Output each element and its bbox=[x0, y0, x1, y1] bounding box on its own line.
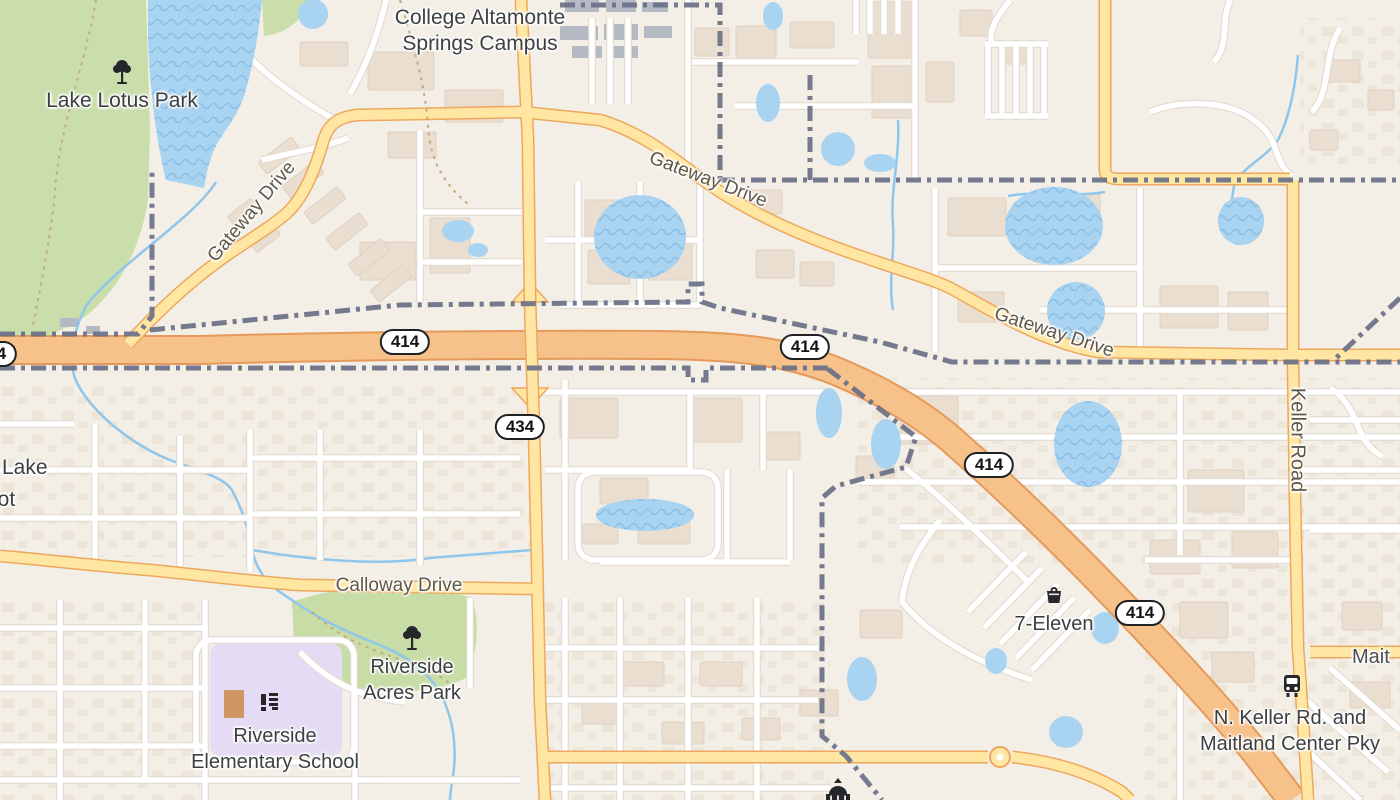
campus-line-3: Springs Campus bbox=[395, 31, 565, 57]
tree-icon bbox=[402, 624, 422, 652]
riverside-acres-line-1: Riverside bbox=[363, 654, 461, 680]
poi-label-lot-partial: Lot bbox=[0, 488, 15, 512]
route-shield-414-d: 414 bbox=[1115, 600, 1165, 626]
map-canvas[interactable] bbox=[0, 0, 1400, 800]
poi-label-lake-partial: Lake bbox=[2, 456, 48, 480]
route-shield-414-c: 414 bbox=[964, 452, 1014, 478]
map-viewport[interactable]: Seminole State College Altamonte Springs… bbox=[0, 0, 1400, 800]
civic-building-icon bbox=[824, 778, 852, 800]
transit-line-1: N. Keller Rd. and bbox=[1200, 705, 1380, 731]
school-icon bbox=[258, 692, 282, 714]
school-line-1: Riverside bbox=[191, 723, 359, 749]
road-label-keller-road: Keller Road bbox=[1286, 388, 1309, 493]
roundabout bbox=[990, 747, 1010, 767]
road-label-maitland-partial: Mait bbox=[1352, 646, 1390, 669]
riverside-acres-line-2: Acres Park bbox=[363, 680, 461, 706]
poi-label-transit-stop[interactable]: N. Keller Rd. and Maitland Center Pky bbox=[1200, 705, 1380, 757]
campus-line-2: College Altamonte bbox=[395, 5, 565, 31]
route-shield-414-a: 414 bbox=[380, 329, 430, 355]
bus-icon[interactable] bbox=[1282, 674, 1302, 698]
transit-line-2: Maitland Center Pky bbox=[1200, 731, 1380, 757]
poi-label-seven-eleven[interactable]: 7-Eleven bbox=[1015, 611, 1094, 637]
poi-label-lake-lotus-park[interactable]: Lake Lotus Park bbox=[46, 88, 198, 114]
tree-icon bbox=[112, 58, 132, 86]
school-line-2: Elementary School bbox=[191, 749, 359, 775]
poi-label-riverside-acres-park[interactable]: Riverside Acres Park bbox=[363, 654, 461, 706]
poi-label-riverside-elementary[interactable]: Riverside Elementary School bbox=[191, 723, 359, 775]
route-shield-414-b: 414 bbox=[780, 334, 830, 360]
shopping-bag-icon[interactable] bbox=[1044, 585, 1064, 605]
road-label-calloway-drive: Calloway Drive bbox=[336, 575, 463, 597]
poi-label-campus[interactable]: Seminole State College Altamonte Springs… bbox=[395, 0, 565, 57]
route-shield-434: 434 bbox=[495, 414, 545, 440]
school-building bbox=[224, 690, 244, 718]
